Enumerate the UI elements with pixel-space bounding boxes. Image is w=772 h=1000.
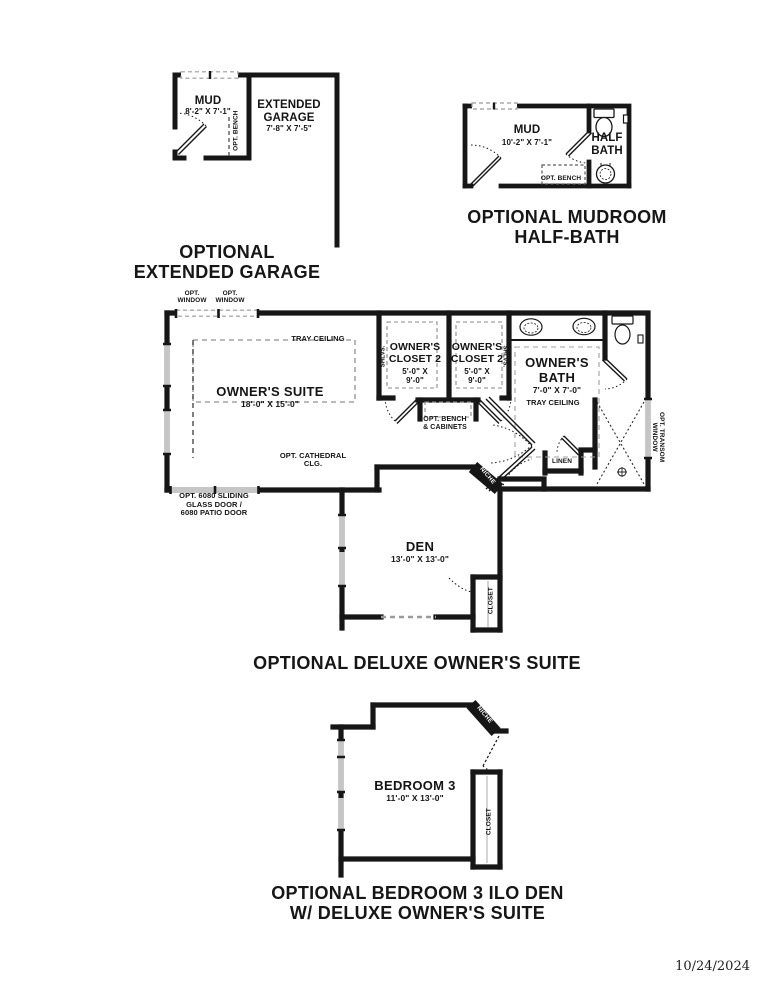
room-dims-mud-halfbath-plan: 10'-2" X 7'-1" [490,139,564,148]
sink-icon [597,163,615,183]
opt-window-label-1: OPT. WINDOW [174,291,210,305]
sliding-door-label: OPT. 6080 SLIDING GLASS DOOR / 6080 PATI… [167,492,261,518]
linen-label: LINEN [546,458,578,465]
room-label-owners-bath: OWNER'S BATH [522,356,592,385]
opt-window-label-2: OPT. WINDOW [212,291,248,305]
room-dims-owners-bath: 7'-0" X 7'-0" [522,386,592,396]
room-dims-extended-garage: 7'-8" X 7'-5" [247,125,331,134]
plan-title-line: W/ DELUXE OWNER'S SUITE [210,904,625,924]
plan-title-line: OPTIONAL MUDROOM [456,208,678,228]
room-dims-owners-closet-left: 5'-0" X 9'-0" [393,368,437,386]
room-dims-owners-suite: 18'-0" X 15'-0" [230,400,310,410]
opt-cathedral-clg-label: OPT. CATHEDRAL CLG. [270,452,356,469]
plan-title-line: OPTIONAL BEDROOM 3 ILO DEN [210,884,625,904]
sliding-door-label-line: 6080 PATIO DOOR [167,509,261,518]
plan-title-line: EXTENDED GARAGE [117,263,337,283]
plan-title-bedroom3-ilo-den: OPTIONAL BEDROOM 3 ILO DEN W/ DELUXE OWN… [210,884,625,923]
toilet-icon [612,316,633,344]
room-label-bedroom3: BEDROOM 3 [370,779,460,794]
plan-title-mudroom-half-bath: OPTIONAL MUDROOM HALF-BATH [456,208,678,247]
sink-icon [520,319,542,335]
door-swing [483,736,501,772]
tray-ceiling-label-bath: TRAY CEILING [524,399,582,407]
room-label-owners-suite: OWNER'S SUITE [215,385,325,400]
shlvs-label-left: SHLVS. [381,341,388,371]
room-label-mud-garage-plan: MUD [183,95,233,108]
room-dims-den: 13'-0" X 13'-0" [385,555,455,565]
closet-label-bedroom3: CLOSET [485,805,492,839]
opt-bench-label-halfbath: OPT. BENCH [536,175,586,182]
room-label-owners-closet-right: OWNER'S CLOSET 2 [446,342,508,366]
sink-icon [573,318,595,334]
plan-title-line: OPTIONAL [117,243,337,263]
shlvs-label-right: SHLVS. [501,341,508,371]
plan-title-line: HALF-BATH [456,228,678,248]
plan-title-extended-garage: OPTIONAL EXTENDED GARAGE [117,243,337,282]
window-opening [337,740,345,830]
opt-transom-window-label: OPT. TRANSOM WINDOW [651,408,665,466]
window-opening [181,71,238,79]
opt-bench-label-garage: OPT. BENCH [232,106,239,156]
opt-bench-cabinets-label: OPT. BENCH & CABINETS [421,416,469,432]
room-label-extended-garage: EXTENDED GARAGE [249,99,329,125]
shower-drain-icon [597,402,644,484]
floorplan-options-sheet: MUD 8'-2" X 7'-1" EXTENDED GARAGE 7'-8" … [0,0,772,1000]
room-label-owners-closet-left: OWNER'S CLOSET 2 [384,342,446,366]
plan-title-deluxe-owners-suite: OPTIONAL DELUXE OWNER'S SUITE [212,654,622,674]
room-label-mud-halfbath-plan: MUD [497,124,557,137]
window-opening [472,103,517,110]
plan-title-line: OPTIONAL DELUXE OWNER'S SUITE [212,654,622,674]
date-stamp: 10/24/2024 [655,959,750,974]
door-swing [176,113,207,155]
toilet-paper-icon [638,335,643,343]
room-dims-mud-garage-plan: 8'-2" X 7'-1" [185,108,231,117]
room-dims-owners-closet-right: 5'-0" X 9'-0" [455,368,499,386]
closet-label-den: CLOSET [487,584,494,618]
room-label-half-bath: HALF BATH [583,132,631,158]
tray-ceiling-label-suite: TRAY CEILING [289,335,347,343]
room-label-den: DEN [393,540,447,555]
toilet-paper-icon [624,115,629,123]
room-dims-bedroom3: 11'-0" X 13'-0" [375,794,455,804]
